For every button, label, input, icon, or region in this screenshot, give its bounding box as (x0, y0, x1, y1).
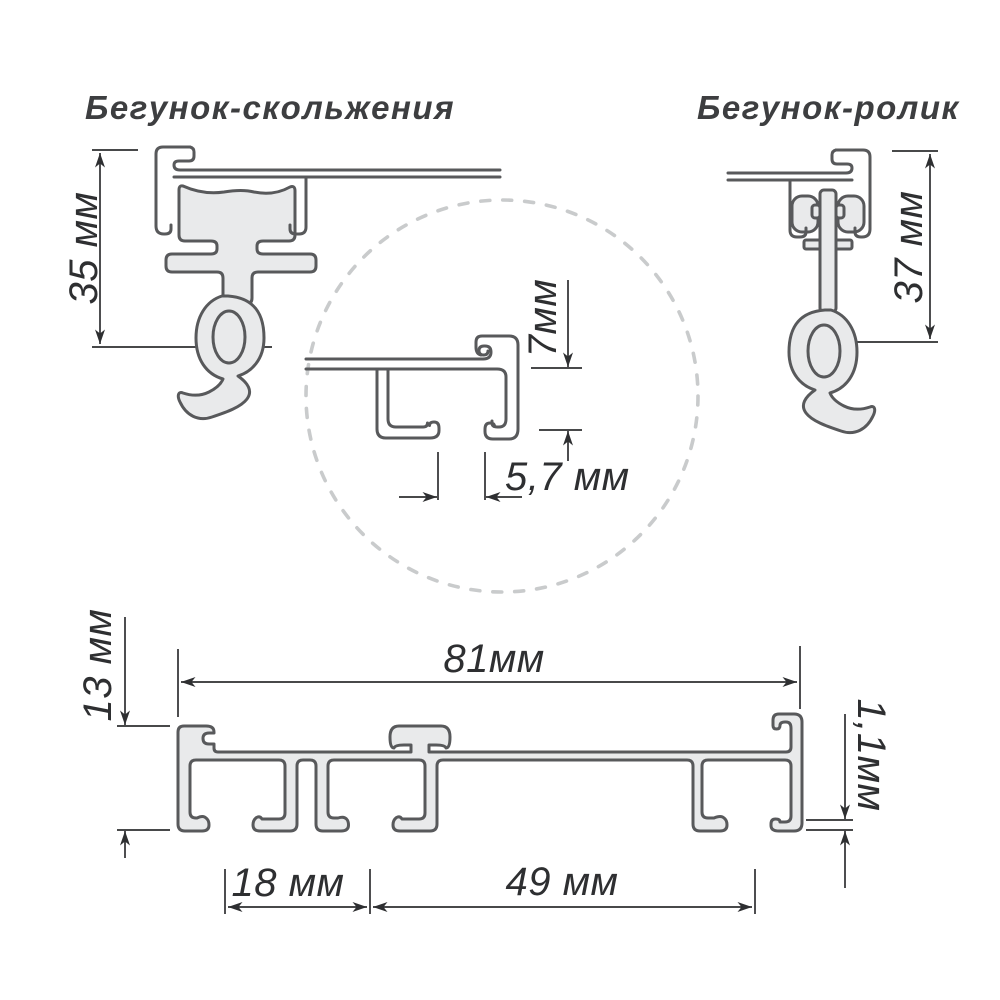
roller-stem (820, 190, 836, 312)
drawing-canvas: Бегунок-скольжения Бегунок-ролик 35 мм 3… (0, 0, 1000, 1000)
technical-drawing-page: Бегунок-скольжения Бегунок-ролик 35 мм 3… (0, 0, 1000, 1000)
profile-end-detail (306, 336, 518, 439)
dimension-label-1-1mm: 1,1мм (849, 699, 893, 812)
dimension-5-7mm: 5,7 мм (399, 452, 630, 500)
dimension-81mm: 81мм (178, 637, 800, 717)
magnifier-dashed-circle (306, 200, 698, 592)
dimension-label-7mm: 7мм (521, 279, 565, 358)
dimension-49mm: 49 мм (373, 860, 755, 914)
slider-glider-body (166, 186, 316, 304)
curtain-hook-right (789, 310, 875, 433)
title-roller-runner: Бегунок-ролик (697, 89, 960, 126)
dimension-13mm: 13 мм (76, 609, 170, 858)
dimension-7mm: 7мм (521, 279, 582, 461)
dimension-label-18mm: 18 мм (232, 861, 345, 905)
dimension-18mm: 18 мм (225, 861, 370, 914)
slider-runner-drawing: 35 мм (62, 147, 500, 419)
dimension-label-35mm: 35 мм (62, 192, 106, 305)
dimension-label-5-7mm: 5,7 мм (505, 455, 630, 499)
profile-shape (178, 714, 802, 831)
roller-runner-drawing: 37 мм (728, 150, 938, 433)
profile-detail-circle: 7мм 5,7 мм (306, 200, 698, 592)
dimension-label-49mm: 49 мм (506, 860, 619, 904)
roller-axle-right (836, 205, 844, 218)
dimension-label-37mm: 37 мм (887, 191, 931, 304)
title-slider-runner: Бегунок-скольжения (85, 89, 455, 126)
roller-axle-left (812, 205, 820, 218)
dimension-label-13mm: 13 мм (76, 609, 120, 722)
dimension-label-81mm: 81мм (443, 637, 544, 681)
dimension-1-1mm: 1,1мм (806, 699, 893, 888)
curtain-hook-left (178, 296, 264, 419)
profile-cross-section: 13 мм 81мм 1,1мм 18 мм 49 мм (76, 609, 893, 914)
